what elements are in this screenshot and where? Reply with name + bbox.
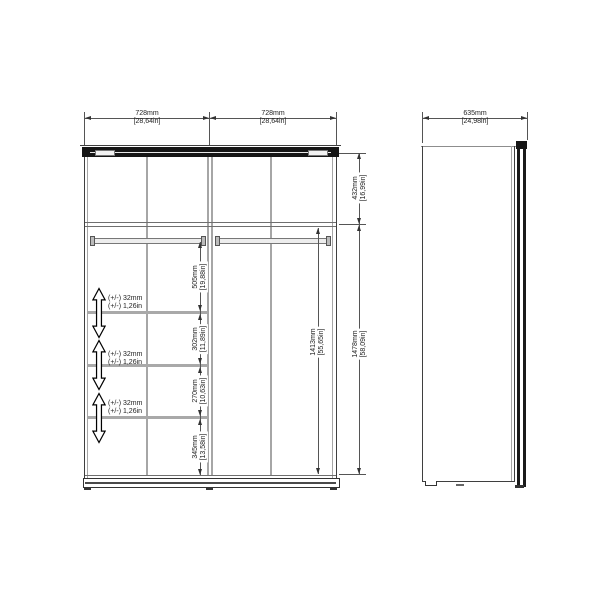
dim-in: [55,65in] <box>318 328 326 355</box>
tolerance-in: (+/-) 1,26in <box>108 303 142 311</box>
side-left-wall <box>422 146 423 482</box>
dim-arrow <box>330 116 336 120</box>
dim-mm: 728mm <box>134 110 161 118</box>
dim-label-1478: 1478mm [58,09in] <box>352 328 368 359</box>
dim-in: [10,63in] <box>200 378 208 405</box>
top-shelf-lower-line <box>85 226 336 227</box>
door-roller-left <box>95 150 115 156</box>
dim-label-728-right: 728mm [28,64in] <box>260 110 287 126</box>
dim-arrow <box>210 116 216 120</box>
dim-arrow <box>198 469 202 475</box>
dim-label-1413: 1413mm [55,65in] <box>310 326 326 357</box>
left-wall-outer <box>84 157 85 478</box>
tolerance-mm: (+/-) 32mm <box>108 295 142 303</box>
side-foot-center <box>456 484 464 486</box>
tolerance-label-1: (+/-) 32mm (+/-) 1,26in <box>108 295 142 312</box>
rail-bracket <box>215 236 220 246</box>
side-right-wall-inner <box>511 146 512 482</box>
dim-arrow <box>203 116 209 120</box>
hanging-rail-right <box>216 238 329 244</box>
partition-right <box>270 157 272 475</box>
adjust-arrow-icon <box>92 286 106 340</box>
dim-arrow <box>357 218 361 224</box>
right-wall-outer <box>336 157 337 478</box>
bottom-panel-line <box>85 475 336 476</box>
side-door-panel-front <box>517 149 520 487</box>
dim-arrow <box>423 116 429 120</box>
dim-arrow <box>198 242 202 248</box>
dim-label-345: 345mm [13,58in] <box>192 432 208 463</box>
adjustable-shelf-2 <box>88 364 208 367</box>
dim-in: [28,64in] <box>134 118 161 126</box>
tolerance-label-3: (+/-) 32mm (+/-) 1,26in <box>108 400 142 417</box>
dim-mm: 270mm <box>192 378 200 405</box>
dim-label-635: 635mm [24,98in] <box>462 110 489 126</box>
plinth-groove <box>85 482 336 484</box>
ext-bottom-right <box>339 474 366 475</box>
front-foot-right <box>330 487 337 490</box>
dim-arrow <box>357 225 361 231</box>
wardrobe-top-edge <box>80 145 341 146</box>
side-door-bottom-guide <box>515 485 524 488</box>
dim-mm: 302mm <box>192 326 200 352</box>
tolerance-label-2: (+/-) 32mm (+/-) 1,26in <box>108 351 142 368</box>
rail-bracket <box>90 236 95 246</box>
dim-mm: 635mm <box>462 110 489 118</box>
adjustable-shelf-1 <box>88 311 208 314</box>
partition-center-b <box>211 157 213 475</box>
right-wall-inner <box>332 157 333 478</box>
dim-arrow <box>357 153 361 159</box>
dim-in: [16,99in] <box>360 175 368 202</box>
partition-left <box>146 157 148 475</box>
dim-mm: 432mm <box>352 175 360 202</box>
dim-arrow <box>521 116 527 120</box>
side-top-edge <box>421 146 516 147</box>
dim-arrow <box>198 419 202 425</box>
dim-arrow <box>198 305 202 311</box>
dim-label-302: 302mm [11,89in] <box>192 324 208 354</box>
technical-drawing-canvas: 728mm [28,64in] 728mm [28,64in] <box>0 0 610 610</box>
top-shelf-upper-line <box>85 222 336 223</box>
hanging-rail-left <box>91 238 205 244</box>
dim-in: [13,58in] <box>200 434 208 461</box>
dim-in: [11,89in] <box>200 326 208 352</box>
partition-center-a <box>207 157 209 475</box>
tolerance-mm: (+/-) 32mm <box>108 400 142 408</box>
dim-in: [24,98in] <box>462 118 489 126</box>
dim-label-432: 432mm [16,99in] <box>352 173 368 204</box>
front-foot-left <box>84 487 91 490</box>
adjust-arrow-icon <box>92 391 106 445</box>
adjust-arrow-icon <box>92 338 106 392</box>
tolerance-mm: (+/-) 32mm <box>108 351 142 359</box>
tolerance-in: (+/-) 1,26in <box>108 359 142 367</box>
tolerance-in: (+/-) 1,26in <box>108 408 142 416</box>
front-top-ext-right <box>336 112 337 146</box>
dim-mm: 728mm <box>260 110 287 118</box>
adjustable-shelf-3 <box>88 416 208 419</box>
track-highlight <box>90 152 331 153</box>
dim-arrow <box>198 314 202 320</box>
dim-in: [28,64in] <box>260 118 287 126</box>
dim-mm: 1478mm <box>352 330 360 357</box>
side-right-wall-outer <box>514 146 515 482</box>
side-ext-right <box>527 112 528 140</box>
dim-arrow <box>198 358 202 364</box>
front-foot-center <box>206 487 213 490</box>
dim-arrow <box>316 228 320 234</box>
rail-bracket <box>326 236 331 246</box>
dim-arrow <box>198 410 202 416</box>
dim-arrow <box>198 367 202 373</box>
ext-shelf-right <box>339 224 366 225</box>
dim-arrow <box>357 468 361 474</box>
side-foot-left <box>425 481 437 486</box>
dim-mm: 345mm <box>192 434 200 461</box>
ext-top-right <box>339 153 366 154</box>
door-roller-right <box>308 150 328 156</box>
side-door-panel-back <box>523 149 526 487</box>
dim-in: [58,09in] <box>360 330 368 357</box>
dim-arrow <box>85 116 91 120</box>
dim-label-270: 270mm [10,63in] <box>192 376 208 407</box>
left-wall-inner <box>87 157 88 478</box>
dim-arrow <box>316 468 320 474</box>
dim-label-505: 505mm [19,88in] <box>192 262 208 293</box>
dim-mm: 1413mm <box>310 328 318 355</box>
dim-mm: 505mm <box>192 264 200 291</box>
dim-in: [19,88in] <box>200 264 208 291</box>
side-door-top-cap <box>516 141 527 149</box>
dim-label-728-left: 728mm [28,64in] <box>134 110 161 126</box>
